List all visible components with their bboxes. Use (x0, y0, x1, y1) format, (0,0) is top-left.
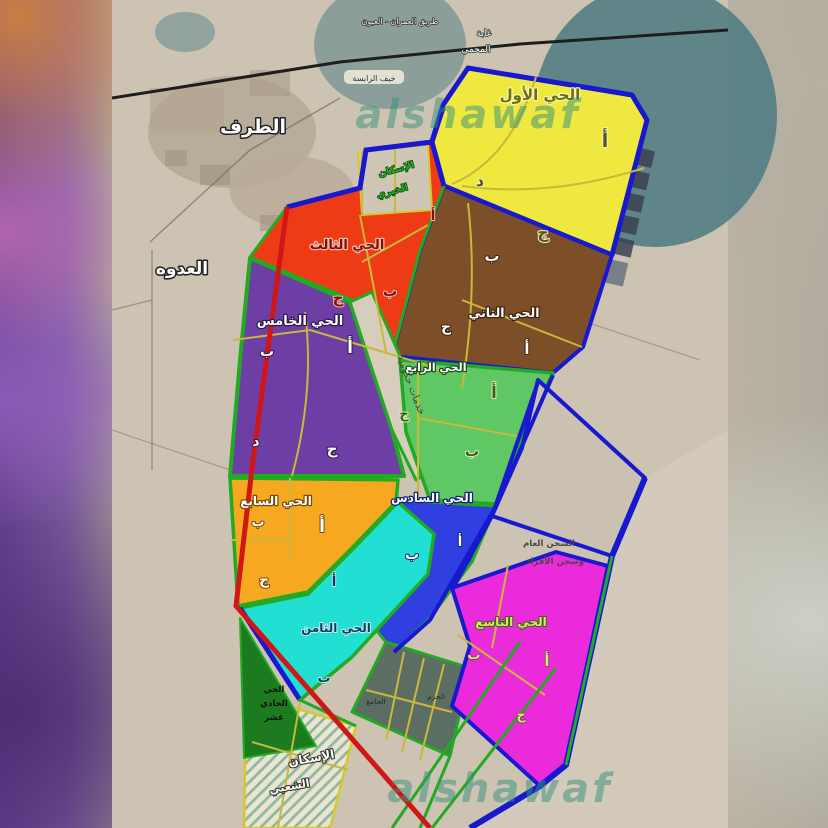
district-3-section-b: ب (383, 284, 397, 300)
district-11-label-l2: الحادي (260, 699, 288, 709)
district-2-section-j: ج (441, 319, 452, 335)
district-3-section-j: ج (333, 289, 344, 307)
district-8-section-b: ب (317, 671, 330, 686)
watermark-top: alshawaf (355, 92, 582, 138)
district-1-section-a: أ (602, 128, 609, 152)
district-7-section-j: ج (259, 572, 270, 588)
district-2-label: الحي الثاني (468, 305, 539, 320)
district-5-label: الحي الخامس (257, 314, 343, 329)
district-9-section-b: ب (467, 648, 480, 663)
district-11-label-l1: الحي (264, 685, 285, 695)
district-2-section-b: ب (484, 247, 499, 265)
district-2-section-a: أ (524, 339, 529, 358)
village-pill-label: خيف الرابسة (344, 70, 404, 84)
prison-label-l1: السجن العام (523, 539, 575, 549)
district-6-section-b: ب (405, 547, 419, 563)
district-8-label: الحي الثامن (301, 621, 371, 635)
forest-label-1: غابة (477, 29, 492, 39)
district-7-section-a: أ (319, 515, 325, 537)
district-9-label: الحي التاسع (475, 615, 547, 629)
district-7-label: الحي السابع (240, 494, 312, 508)
prison-label-l2: وسجن الأفراد (526, 556, 584, 567)
district-4-section-a: أ (491, 382, 496, 402)
district-5-section-j: ج (327, 440, 338, 458)
district-7-section-b: ب (251, 515, 264, 530)
district-5-section-a: أ (347, 336, 353, 358)
district-1-section-d: د (476, 171, 484, 190)
district-6-section-a: أ (458, 533, 462, 550)
district-4-section-b: ب (465, 444, 479, 460)
district-3-section-a: أ (431, 207, 435, 224)
haram-label: الحرم (427, 692, 445, 701)
district-5-section-b: ب (260, 344, 274, 360)
forest-label-2: المحمي (462, 45, 491, 55)
district-3-label: الحي الثالث (310, 238, 385, 253)
district-5-section-d: د (252, 434, 259, 450)
district-8-section-a: أ (332, 572, 337, 590)
district-1-section-j: ج (537, 223, 549, 242)
district-11-label-l3: عشر (263, 713, 284, 723)
district-4-section-j: ج (399, 407, 409, 422)
photo-viewer-background: الطرف العدوه طريق العمران - العيون خيف ا… (0, 0, 828, 828)
watermark-bottom: alshawaf (387, 766, 614, 812)
district-6-label: الحي السادس (391, 491, 473, 505)
town-label-altaraf: الطرف (220, 116, 286, 138)
district-9-section-a: أ (544, 651, 549, 670)
district-9-section-j: ج (516, 708, 526, 723)
mosque-label: الجامع (366, 697, 386, 706)
top-road-label: طريق العمران - العيون (362, 17, 439, 26)
village-pill-text: خيف الرابسة (352, 74, 395, 83)
district-4-label: الحي الرابع (406, 361, 467, 374)
map-svg: الطرف العدوه طريق العمران - العيون خيف ا… (0, 0, 828, 828)
town-label-aladwah: العدوه (156, 259, 208, 279)
